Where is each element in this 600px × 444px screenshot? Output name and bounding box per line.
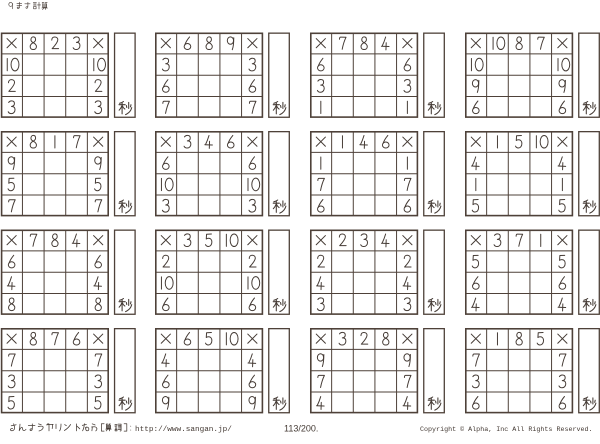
svg-text:113/200.: 113/200. [284,424,318,434]
svg-text:Copyright © Alpha, Inc All Rig: Copyright © Alpha, Inc All Rights Reserv… [420,425,593,434]
svg-text:http://www.sangan.jp/: http://www.sangan.jp/ [135,426,232,434]
